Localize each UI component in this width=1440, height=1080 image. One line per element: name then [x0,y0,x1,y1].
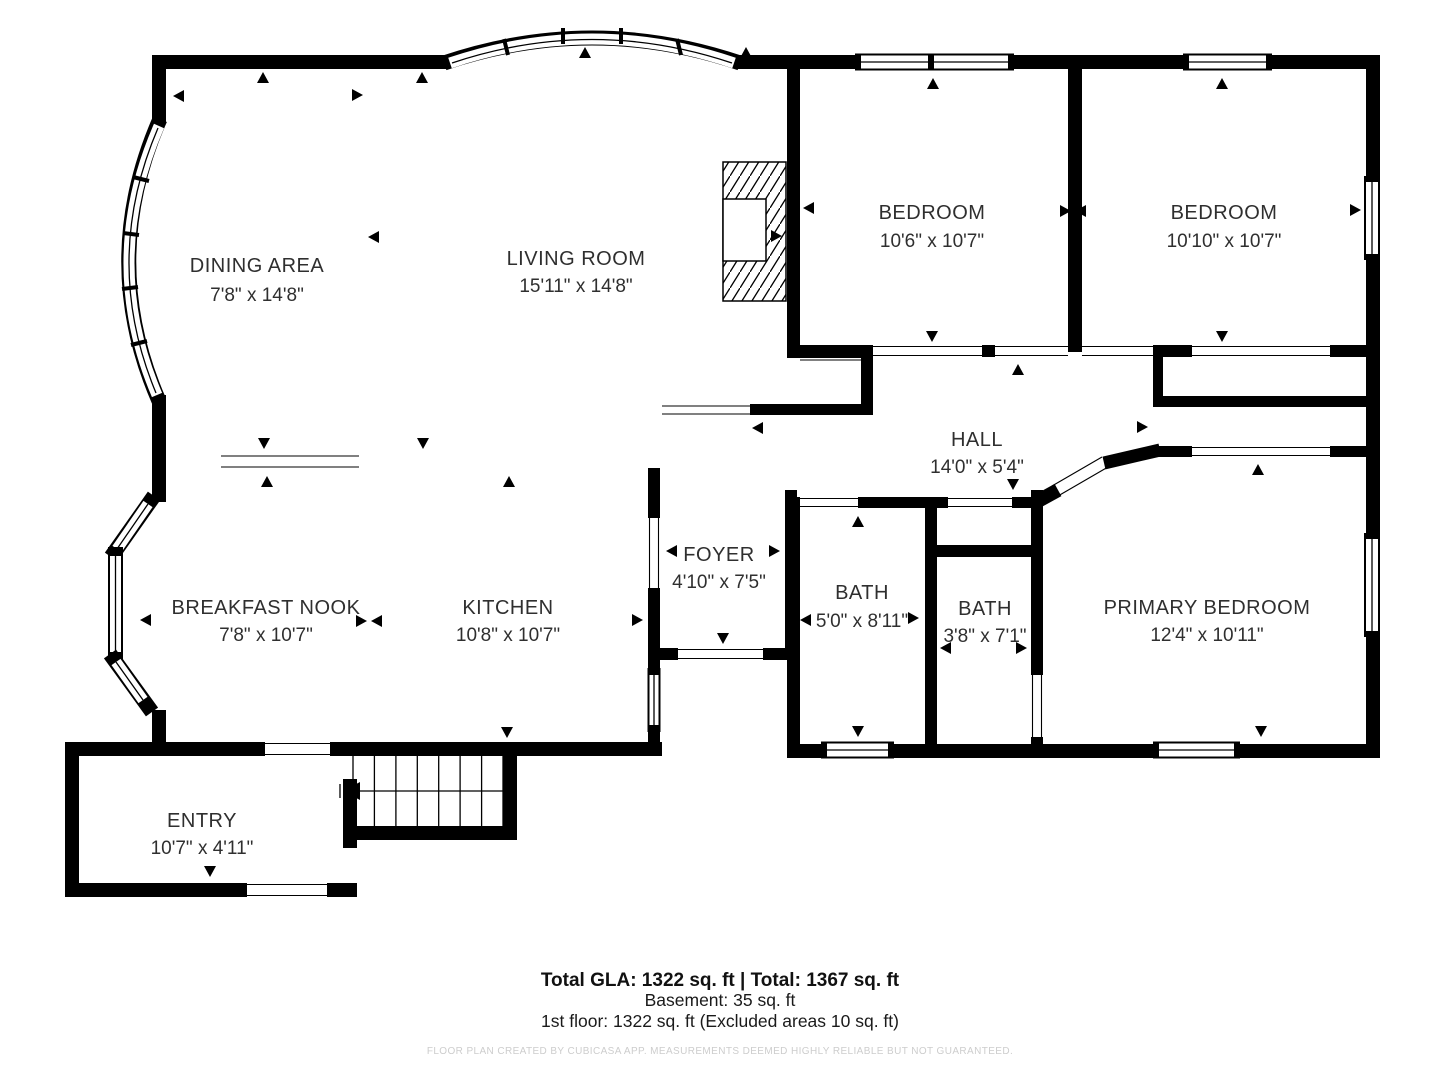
room-label-entry: ENTRY [167,810,237,832]
room-label-hall: HALL [951,429,1003,451]
room-label-kitchen: KITCHEN [462,597,553,619]
room-label-bath-2: BATH [958,598,1012,620]
room-dims-hall: 14'0" x 5'4" [930,457,1024,478]
room-dims-kitchen: 10'8" x 10'7" [456,625,560,646]
room-dims-entry: 10'7" x 4'11" [151,838,254,859]
room-dims-bath-2: 3'8" x 7'1" [943,626,1026,647]
room-label-bath-1: BATH [835,582,889,604]
area-summary: Total GLA: 1322 sq. ft | Total: 1367 sq.… [427,970,1013,1057]
room-label-dining-area: DINING AREA [190,255,325,277]
marker-left-icons [140,90,1086,654]
room-label-bedroom-2: BEDROOM [1171,202,1278,224]
fireplace [723,162,786,301]
room-label-breakfast-nook: BREAKFAST NOOK [172,597,361,619]
basement-area-text: Basement: 35 sq. ft [645,990,796,1010]
room-dims-dining-area: 7'8" x 14'8" [210,285,304,306]
room-label-bedroom-1: BEDROOM [879,202,986,224]
first-floor-area-text: 1st floor: 1322 sq. ft (Excluded areas 1… [541,1011,899,1031]
room-label-primary-bedroom: PRIMARY BEDROOM [1104,597,1311,619]
room-dims-breakfast-nook: 7'8" x 10'7" [219,625,313,646]
marker-right-icons [352,89,1361,654]
room-dims-bedroom-1: 10'6" x 10'7" [880,231,984,252]
room-label-living-room: LIVING ROOM [507,248,646,270]
room-label-foyer: FOYER [683,544,754,566]
room-dims-bedroom-2: 10'10" x 10'7" [1167,231,1282,252]
room-dims-primary-bedroom: 12'4" x 10'11" [1150,625,1263,646]
stairs [340,756,503,826]
door-openings [221,347,1330,896]
room-dims-living-room: 15'11" x 14'8" [519,276,632,297]
bow-window-top [444,28,740,63]
disclaimer-text: FLOOR PLAN CREATED BY CUBICASA APP. MEAS… [427,1046,1013,1057]
room-dims-bath-1: 5'0" x 8'11" [816,611,908,632]
room-dims-foyer: 4'10" x 7'5" [672,572,766,593]
bay-window-dining [122,119,160,401]
total-gla-text: Total GLA: 1322 sq. ft | Total: 1367 sq.… [541,970,900,991]
floor-plan-canvas: DINING AREA 7'8" x 14'8" LIVING ROOM 15'… [0,0,1440,1080]
